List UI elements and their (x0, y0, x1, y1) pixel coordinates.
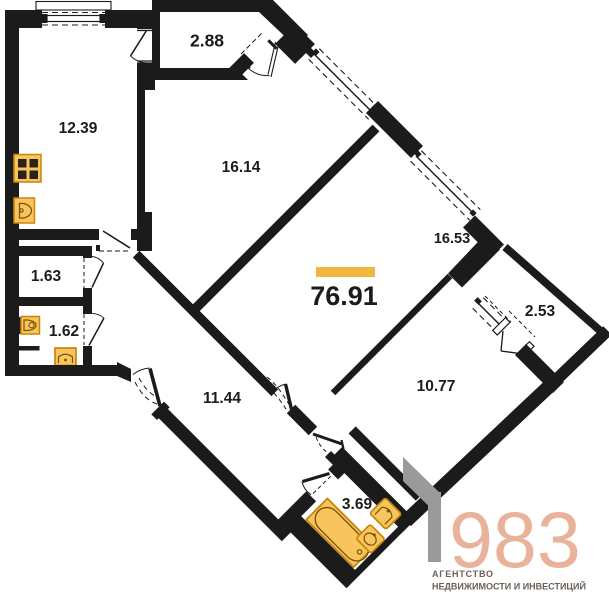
svg-text:1.62: 1.62 (49, 323, 79, 340)
svg-text:12.39: 12.39 (59, 120, 98, 137)
svg-text:76.91: 76.91 (310, 281, 378, 311)
svg-text:16.14: 16.14 (222, 159, 261, 176)
svg-text:2.53: 2.53 (525, 303, 556, 320)
svg-text:НЕДВИЖИМОСТИ И ИНВЕСТИЦИЙ: НЕДВИЖИМОСТИ И ИНВЕСТИЦИЙ (432, 581, 586, 592)
svg-text:1.63: 1.63 (31, 268, 62, 285)
svg-text:16.53: 16.53 (434, 231, 470, 247)
svg-text:11.44: 11.44 (203, 390, 241, 407)
svg-text:3.69: 3.69 (342, 496, 373, 513)
svg-text:10.77: 10.77 (417, 378, 456, 395)
svg-text:2.88: 2.88 (190, 31, 224, 51)
svg-text:АГЕНТСТВО: АГЕНТСТВО (432, 569, 494, 579)
